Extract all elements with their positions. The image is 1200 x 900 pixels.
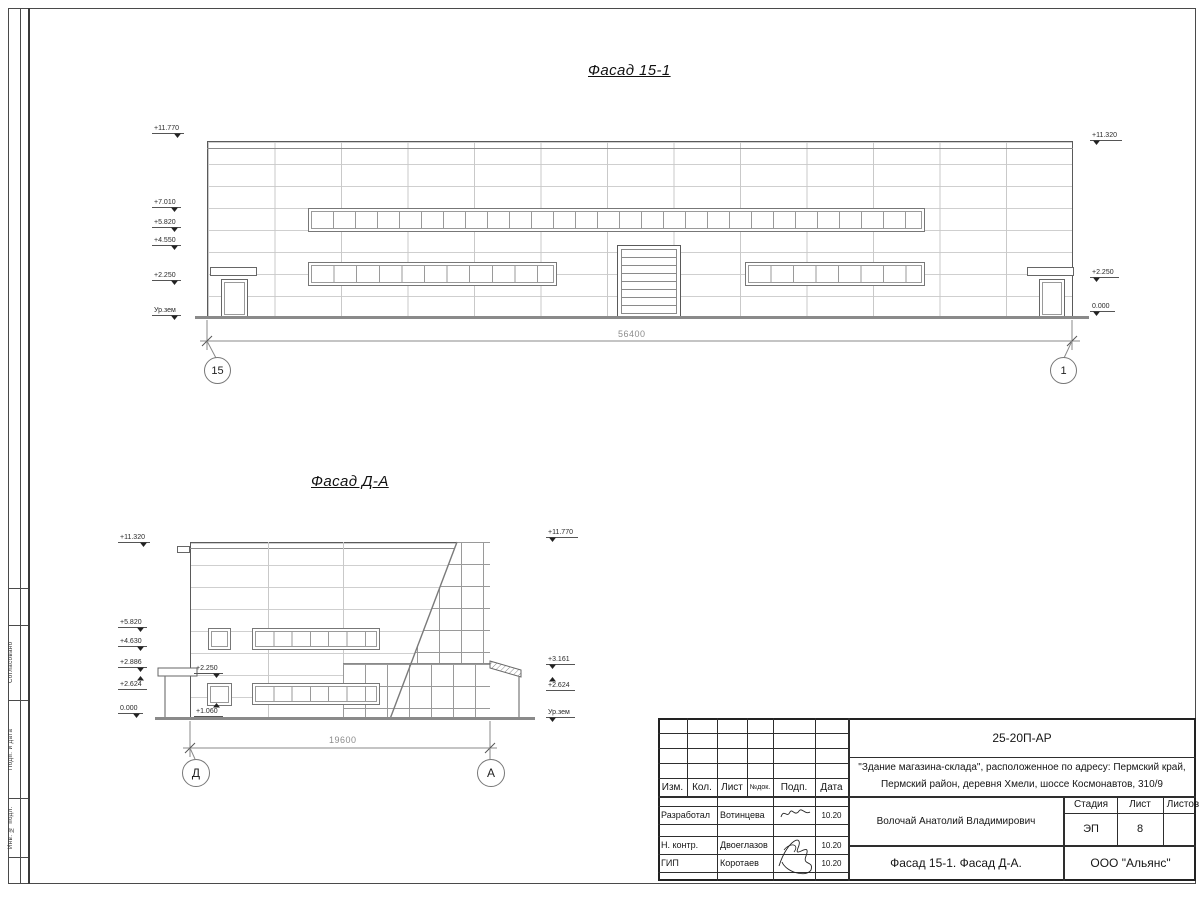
tb-line xyxy=(717,718,718,881)
axis-label: Д xyxy=(192,766,200,780)
tb-row2-role: Н. контр. xyxy=(661,840,698,850)
tb-col-list: Лист xyxy=(717,778,747,796)
tb-project-line2: Пермский район, деревня Хмели, шоссе Кос… xyxy=(848,776,1196,792)
tb-col-ndok: №док. xyxy=(747,778,773,796)
facade2-axis-right: А xyxy=(477,759,505,787)
tb-doc-number: 25-20П-АР xyxy=(848,718,1196,757)
tb-stage-value: ЭП xyxy=(1065,813,1117,845)
tb-row3-name: Коротаев xyxy=(720,858,759,868)
tb-line xyxy=(658,763,848,764)
tb-drawing-title: Фасад 15-1. Фасад Д-А. xyxy=(849,847,1063,879)
signature-mark xyxy=(776,832,816,876)
tb-row1-date: 10.20 xyxy=(815,806,848,824)
tb-project-line1: "Здание магазина-склада", расположенное … xyxy=(848,759,1196,775)
tb-col-kol: Кол. xyxy=(687,778,717,796)
tb-company: ООО "Альянс" xyxy=(1065,847,1196,879)
tb-stage-label: Стадия xyxy=(1065,796,1117,813)
tb-row2-date: 10.20 xyxy=(815,836,848,854)
tb-list-value: 8 xyxy=(1117,813,1163,845)
tb-approver: Волочай Анатолий Владимирович xyxy=(849,798,1063,845)
tb-line xyxy=(848,757,1196,758)
facade2-dimension-label: 19600 xyxy=(329,735,357,745)
tb-line xyxy=(773,718,774,881)
facade2-axis-left: Д xyxy=(182,759,210,787)
tb-line xyxy=(658,748,848,749)
tb-line xyxy=(658,872,848,873)
axis-label: А xyxy=(487,766,495,780)
tb-line xyxy=(658,733,848,734)
tb-listov-label: Листов xyxy=(1163,796,1200,813)
tb-row1-role: Разработал xyxy=(661,810,710,820)
tb-row3-role: ГИП xyxy=(661,858,679,868)
drawing-sheet: Согласовано Подп. и дата Инв. № подл. Фа… xyxy=(0,0,1200,900)
tb-list-label: Лист xyxy=(1117,796,1163,813)
tb-row1-name: Вотинцева xyxy=(720,810,765,820)
tb-col-podp: Подп. xyxy=(773,778,815,796)
tb-row3-date: 10.20 xyxy=(815,854,848,872)
signature-mark xyxy=(779,806,813,822)
tb-line xyxy=(658,824,848,825)
tb-col-data: Дата xyxy=(815,778,848,796)
tb-row2-name: Двоеглазов xyxy=(720,840,768,850)
tb-col-izm: Изм. xyxy=(658,778,687,796)
